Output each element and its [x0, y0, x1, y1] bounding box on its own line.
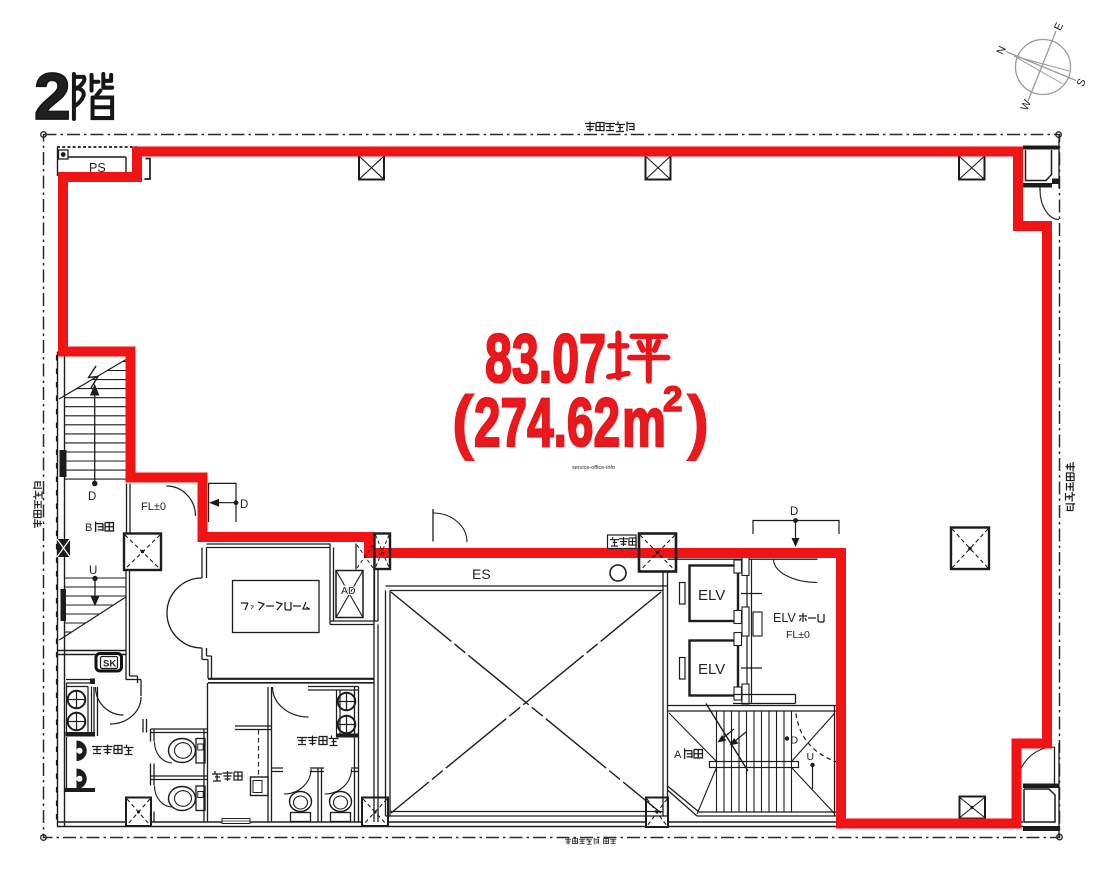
svg-text:E: E [1052, 21, 1066, 33]
svg-text:W: W [1019, 98, 1035, 113]
svg-text:N: N [995, 44, 1009, 56]
svg-text:ES: ES [472, 566, 491, 582]
svg-text:FL±0: FL±0 [786, 629, 810, 641]
svg-text:AD: AD [341, 585, 356, 597]
svg-text:): ) [686, 382, 710, 462]
svg-text:FL±0: FL±0 [141, 501, 166, 513]
svg-text:D: D [790, 506, 798, 518]
svg-text:ELV: ELV [773, 611, 796, 625]
svg-text:service-office-info: service-office-info [572, 465, 615, 471]
svg-text:2: 2 [34, 59, 71, 133]
svg-text:ELV: ELV [698, 587, 725, 604]
svg-text:U: U [89, 565, 97, 577]
svg-text:m: m [622, 384, 666, 461]
svg-text:ELV: ELV [698, 661, 725, 678]
svg-text:2: 2 [663, 380, 682, 419]
svg-text:(: ( [451, 382, 475, 462]
svg-text:A: A [674, 749, 682, 761]
svg-text:D: D [240, 499, 248, 511]
svg-text:S: S [1075, 77, 1089, 89]
svg-text:B: B [85, 522, 92, 534]
svg-text:D: D [791, 735, 799, 747]
svg-text:D: D [88, 491, 96, 503]
svg-text:U: U [807, 751, 815, 763]
svg-text:274.62: 274.62 [474, 384, 620, 461]
svg-text:SK: SK [103, 659, 116, 670]
